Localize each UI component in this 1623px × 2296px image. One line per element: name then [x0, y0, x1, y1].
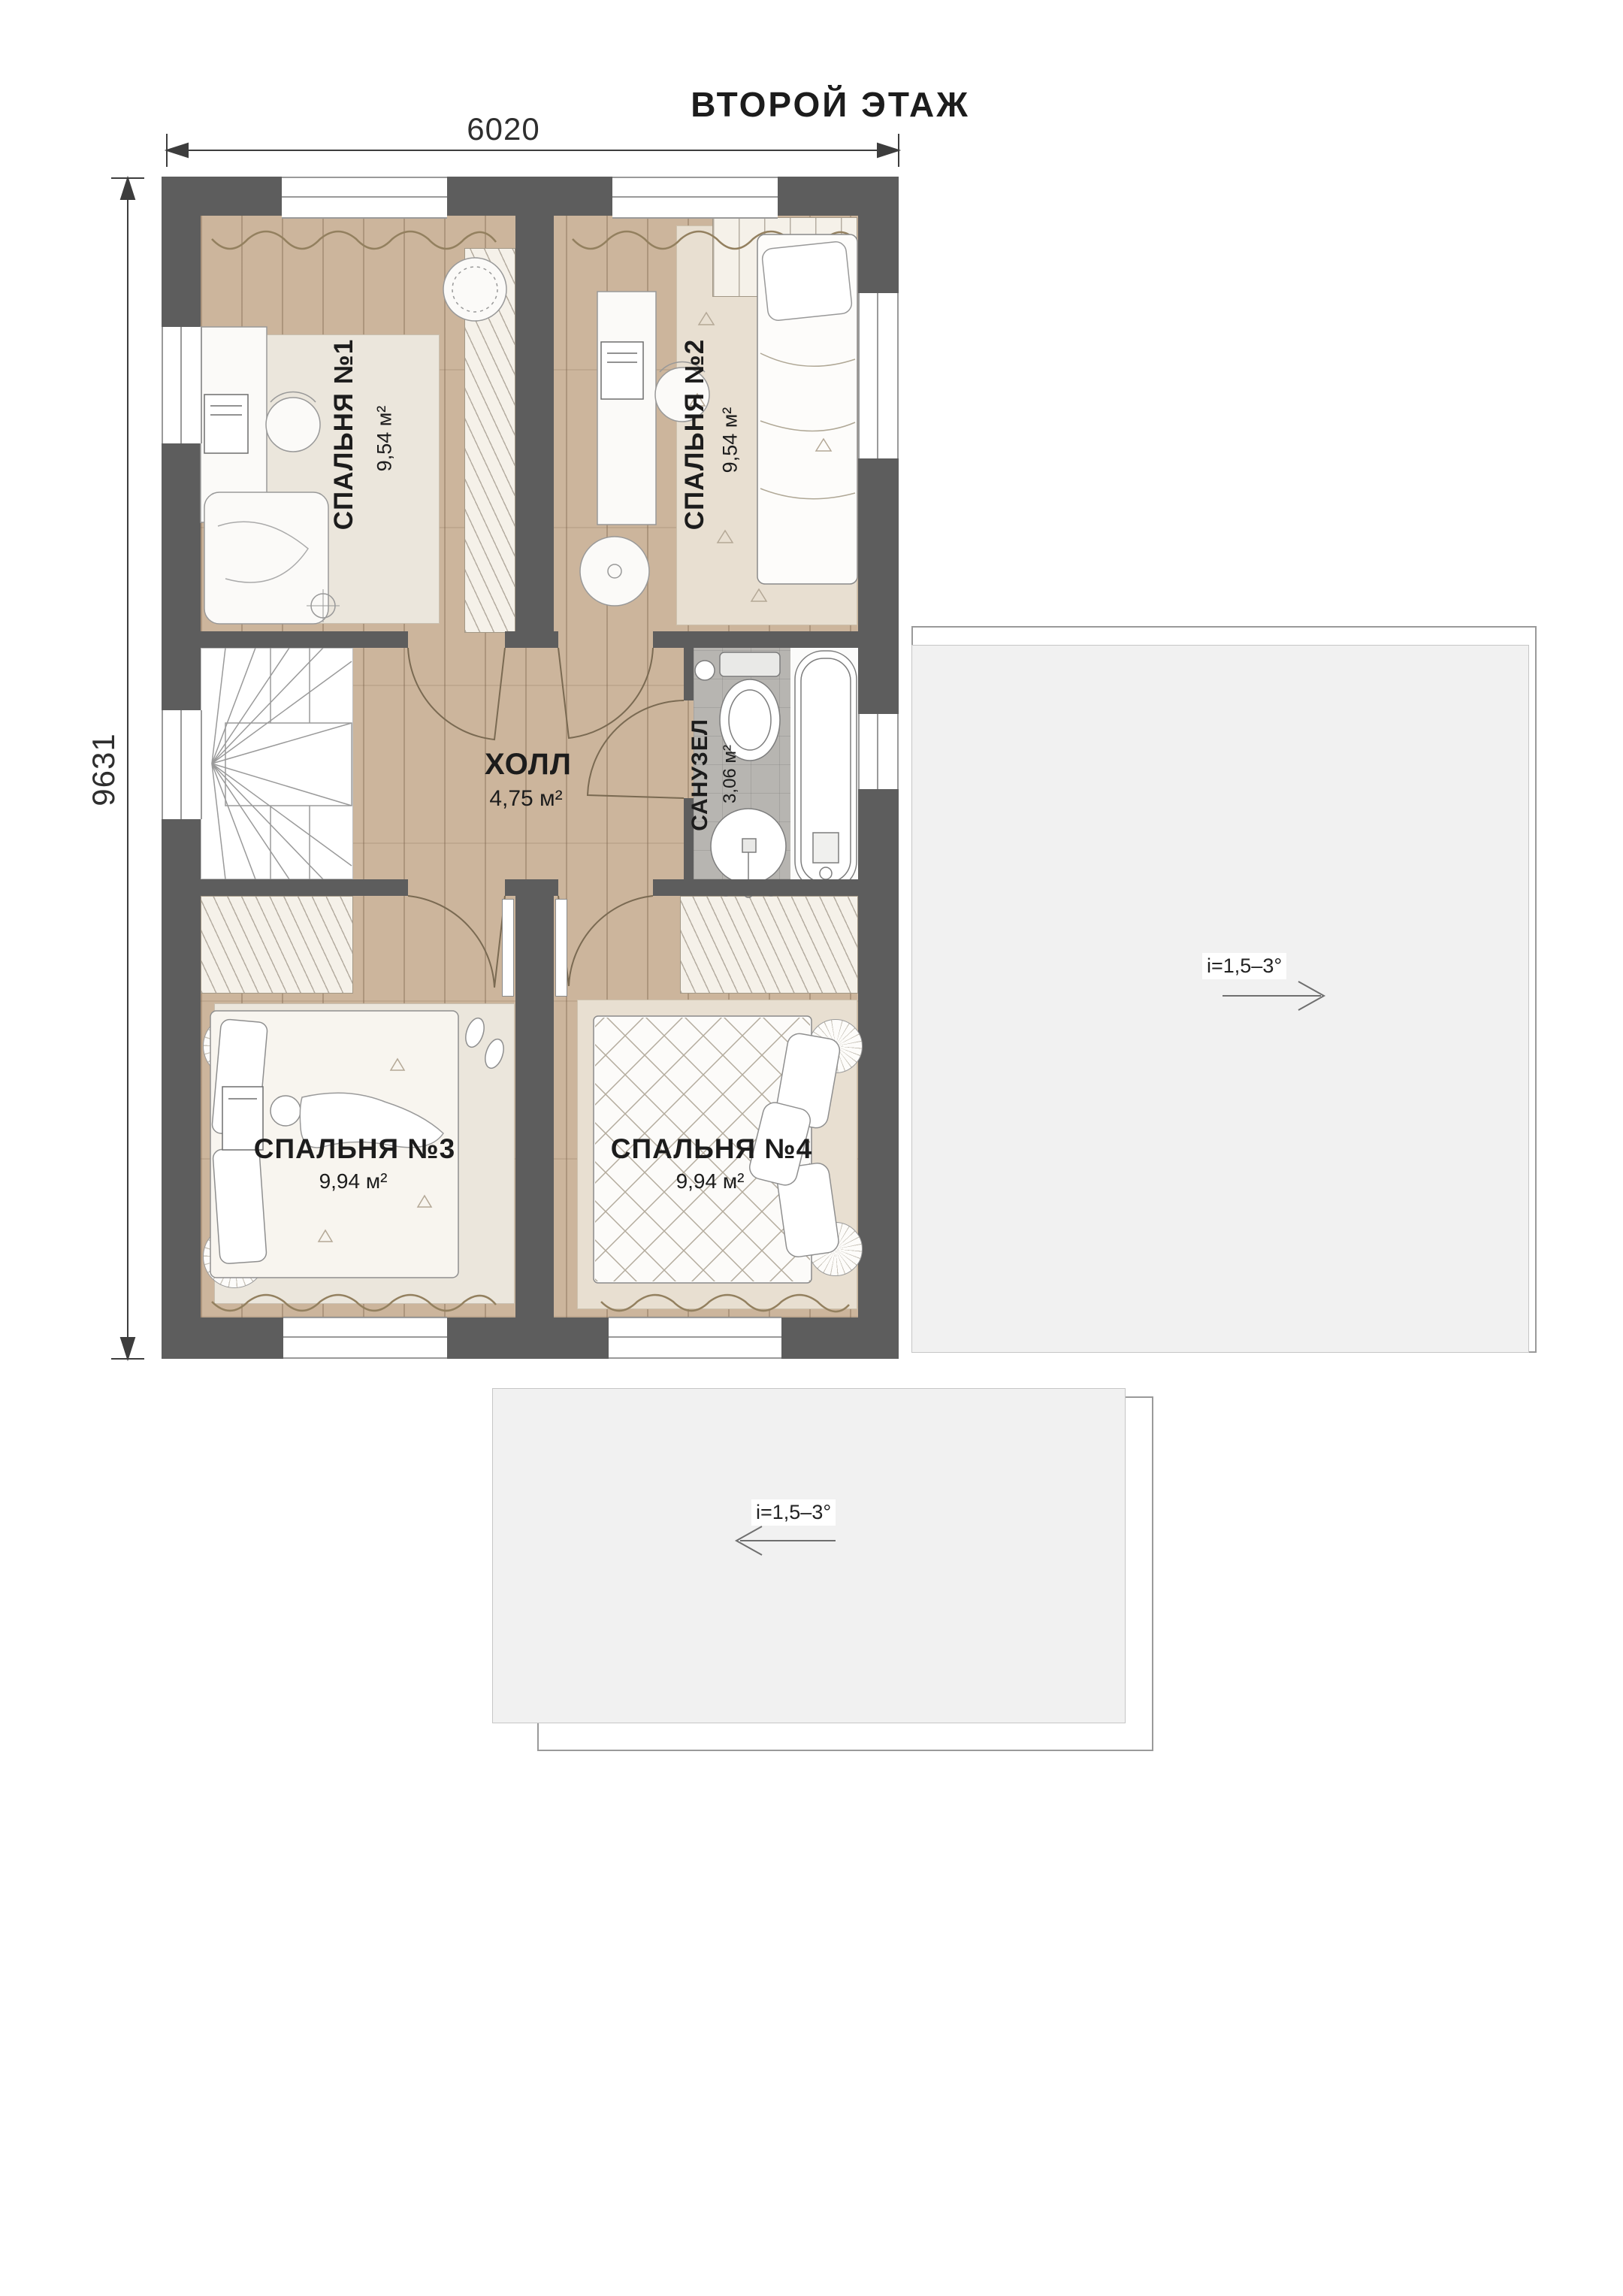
bedroom3-name: СПАЛЬНЯ №3: [242, 1133, 467, 1165]
window-bottom-bedroom4: [609, 1317, 781, 1359]
door-jamb: [505, 879, 515, 896]
bedroom3-wardrobe: [201, 896, 353, 994]
wall-between-bedrooms-1-2: [515, 216, 554, 648]
dimension-left-value: 9631: [86, 657, 122, 882]
window-left-stairs: [162, 710, 202, 819]
floor-plan-sheet: i=1,5–3° i=1,5–3°: [0, 0, 1623, 2296]
window-left-bedroom1: [162, 327, 202, 443]
bedroom3-door-leaf: [502, 899, 514, 997]
bedroom4-area: 9,94 м²: [597, 1169, 823, 1193]
bedroom2-name: СПАЛЬНЯ №2: [680, 322, 710, 547]
window-bottom-bedroom3: [283, 1317, 447, 1359]
roof-right-plane: [911, 645, 1529, 1353]
bedroom2-area: 9,54 м²: [719, 328, 742, 553]
bedroom4-name: СПАЛЬНЯ №4: [599, 1133, 824, 1165]
bedroom2-wardrobe: [712, 217, 857, 297]
hall-wall-lower-right: [653, 879, 858, 896]
bathtub-zone: [790, 648, 858, 879]
hall-name: ХОЛЛ: [416, 748, 641, 782]
bathroom-name: САНУЗЕЛ: [688, 662, 713, 888]
hall-wall-upper-left: [201, 631, 408, 648]
dimension-top-value: 6020: [391, 111, 616, 147]
bedroom4-wardrobe: [680, 896, 858, 994]
bedroom1-wardrobe: [464, 248, 515, 633]
roof-bottom-slope-label: i=1,5–3°: [751, 1499, 836, 1526]
bedroom3-area: 9,94 м²: [240, 1169, 466, 1193]
window-top-bedroom2: [612, 177, 778, 219]
bathroom-area: 3,06 м²: [720, 661, 741, 887]
bedroom1-name: СПАЛЬНЯ №1: [329, 322, 359, 547]
round-rug-icon: [808, 1222, 863, 1276]
page-title: ВТОРОЙ ЭТАЖ: [605, 84, 1056, 125]
hall-wall-upper-right: [653, 631, 858, 648]
staircase: [201, 648, 353, 879]
bedroom1-area: 9,54 м²: [373, 326, 397, 552]
round-rug-icon: [203, 1225, 266, 1288]
window-right-bathroom: [858, 714, 899, 789]
window-top-bedroom1: [282, 177, 447, 219]
door-jamb: [505, 631, 515, 648]
window-right-bedroom2: [858, 293, 899, 458]
wall-between-bedrooms-3-4: [515, 879, 554, 1317]
round-rug-icon: [808, 1019, 863, 1073]
door-jamb: [554, 631, 558, 648]
round-rug-icon: [203, 1015, 266, 1078]
roof-bottom-plane: [492, 1388, 1126, 1723]
bedroom4-door-leaf: [555, 899, 567, 997]
door-jamb: [554, 879, 558, 896]
hall-wall-lower-left: [201, 879, 408, 896]
roof-right-slope-label: i=1,5–3°: [1202, 953, 1286, 979]
hall-area: 4,75 м²: [413, 786, 639, 812]
